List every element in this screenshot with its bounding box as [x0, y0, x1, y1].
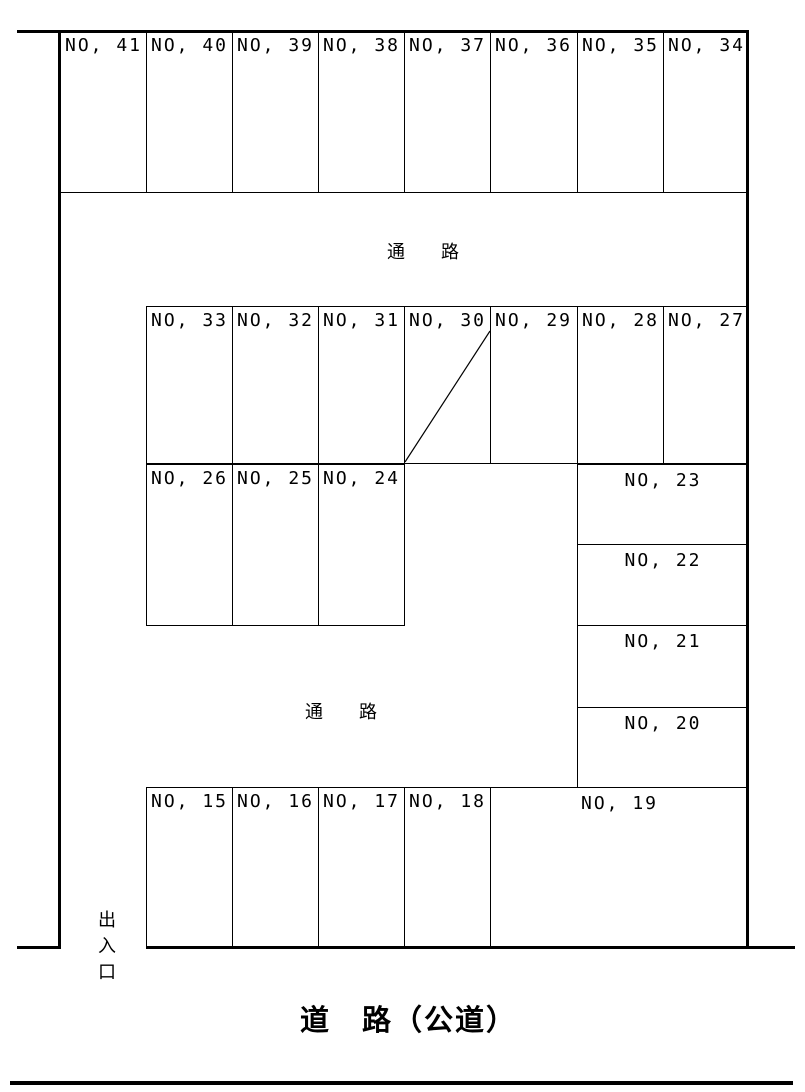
- parking-layout-diagram: NO, 41 NO, 40 NO, 39 NO, 38 NO, 37 NO, 3…: [0, 0, 805, 1092]
- space-label: NO, 26: [147, 465, 232, 489]
- parking-space-29: NO, 29: [490, 306, 578, 464]
- parking-space-25: NO, 25: [232, 464, 319, 626]
- aisle-bottom-label: 通 路: [305, 698, 377, 724]
- space-label: NO, 16: [233, 788, 318, 812]
- parking-space-15: NO, 15: [146, 787, 233, 949]
- parking-space-23: NO, 23: [577, 464, 749, 545]
- parking-space-31: NO, 31: [318, 306, 405, 464]
- space-label: NO, 33: [147, 307, 232, 331]
- space-label: NO, 40: [147, 32, 232, 56]
- boundary-bottom-left-segment: [17, 946, 61, 949]
- parking-space-39: NO, 39: [232, 31, 319, 193]
- space-label: NO, 34: [664, 32, 748, 56]
- parking-space-38: NO, 38: [318, 31, 405, 193]
- parking-space-24: NO, 24: [318, 464, 405, 626]
- parking-space-41: NO, 41: [60, 31, 147, 193]
- parking-space-36: NO, 36: [490, 31, 578, 193]
- parking-space-35: NO, 35: [577, 31, 664, 193]
- parking-space-27: NO, 27: [663, 306, 749, 464]
- parking-space-34: NO, 34: [663, 31, 749, 193]
- parking-space-33: NO, 33: [146, 306, 233, 464]
- parking-space-22: NO, 22: [577, 544, 749, 626]
- space-label: NO, 15: [147, 788, 232, 812]
- parking-space-21: NO, 21: [577, 625, 749, 708]
- space-label: NO, 19: [491, 788, 748, 814]
- parking-space-16: NO, 16: [232, 787, 319, 949]
- space-label: NO, 27: [664, 307, 748, 331]
- parking-space-17: NO, 17: [318, 787, 405, 949]
- space-label: NO, 35: [578, 32, 663, 56]
- parking-space-26: NO, 26: [146, 464, 233, 626]
- space-label: NO, 39: [233, 32, 318, 56]
- space-label: NO, 24: [319, 465, 404, 489]
- space-label: NO, 17: [319, 788, 404, 812]
- parking-space-40: NO, 40: [146, 31, 233, 193]
- public-road-label: 道 路（公道）: [300, 997, 517, 1039]
- space-label: NO, 23: [578, 465, 748, 491]
- space-label: NO, 32: [233, 307, 318, 331]
- space-label: NO, 25: [233, 465, 318, 489]
- space-label: NO, 36: [491, 32, 577, 56]
- space-label: NO, 29: [491, 307, 577, 331]
- space-label: NO, 37: [405, 32, 490, 56]
- parking-space-32: NO, 32: [232, 306, 319, 464]
- parking-space-19: NO, 19: [490, 787, 749, 949]
- parking-space-37: NO, 37: [404, 31, 491, 193]
- space-label: NO, 18: [405, 788, 490, 812]
- space-label: NO, 21: [578, 626, 748, 652]
- space-label: NO, 20: [578, 708, 748, 734]
- space-label: NO, 38: [319, 32, 404, 56]
- parking-space-28: NO, 28: [577, 306, 664, 464]
- parking-space-20: NO, 20: [577, 707, 749, 788]
- road-edge-line: [10, 1081, 793, 1085]
- space-label: NO, 28: [578, 307, 663, 331]
- aisle-top-label: 通 路: [387, 238, 459, 264]
- space-label: NO, 41: [61, 32, 146, 56]
- entrance-exit-label: 出入口: [92, 910, 118, 1000]
- space-label: NO, 31: [319, 307, 404, 331]
- space-label: NO, 30: [405, 307, 490, 331]
- parking-space-30: NO, 30: [404, 306, 491, 464]
- space-label: NO, 22: [578, 545, 748, 571]
- parking-space-18: NO, 18: [404, 787, 491, 949]
